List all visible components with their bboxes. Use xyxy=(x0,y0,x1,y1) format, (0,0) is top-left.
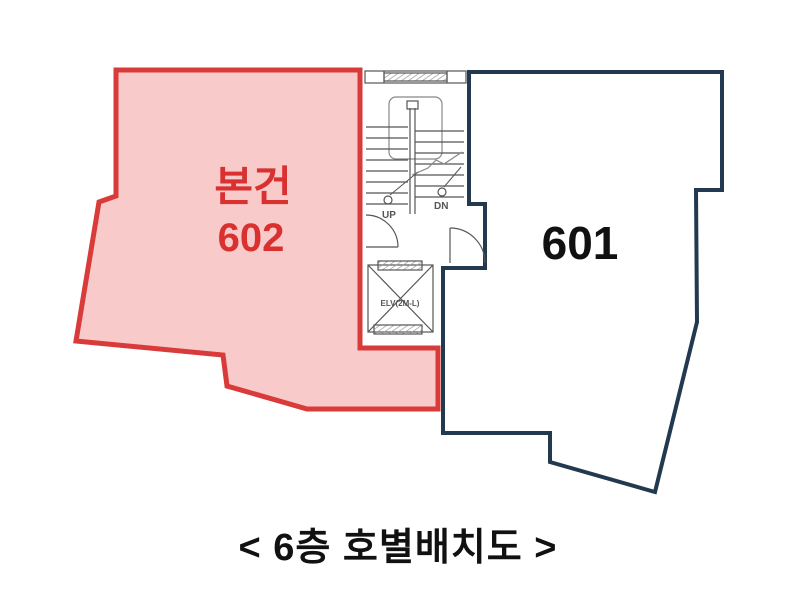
elevator-label: ELV(2M-L) xyxy=(381,299,420,308)
unit-601-number: 601 xyxy=(542,217,619,269)
stair-window xyxy=(365,71,466,83)
stair-dn-label: DN xyxy=(434,201,448,212)
caption: < 6층 호별배치도 > xyxy=(239,527,558,569)
stair-up-label: UP xyxy=(382,210,396,221)
elevator-door-bottom xyxy=(374,325,422,334)
unit-602-number: 602 xyxy=(218,216,285,260)
floorplan-diagram: UP DN ELV(2M-L) 본건 6 xyxy=(0,0,800,595)
floorplan-page: UP DN ELV(2M-L) 본건 6 xyxy=(0,0,800,595)
unit-602-tag: 본건 xyxy=(214,163,291,210)
elevator: ELV(2M-L) xyxy=(368,261,433,334)
elevator-door-top xyxy=(378,261,422,270)
